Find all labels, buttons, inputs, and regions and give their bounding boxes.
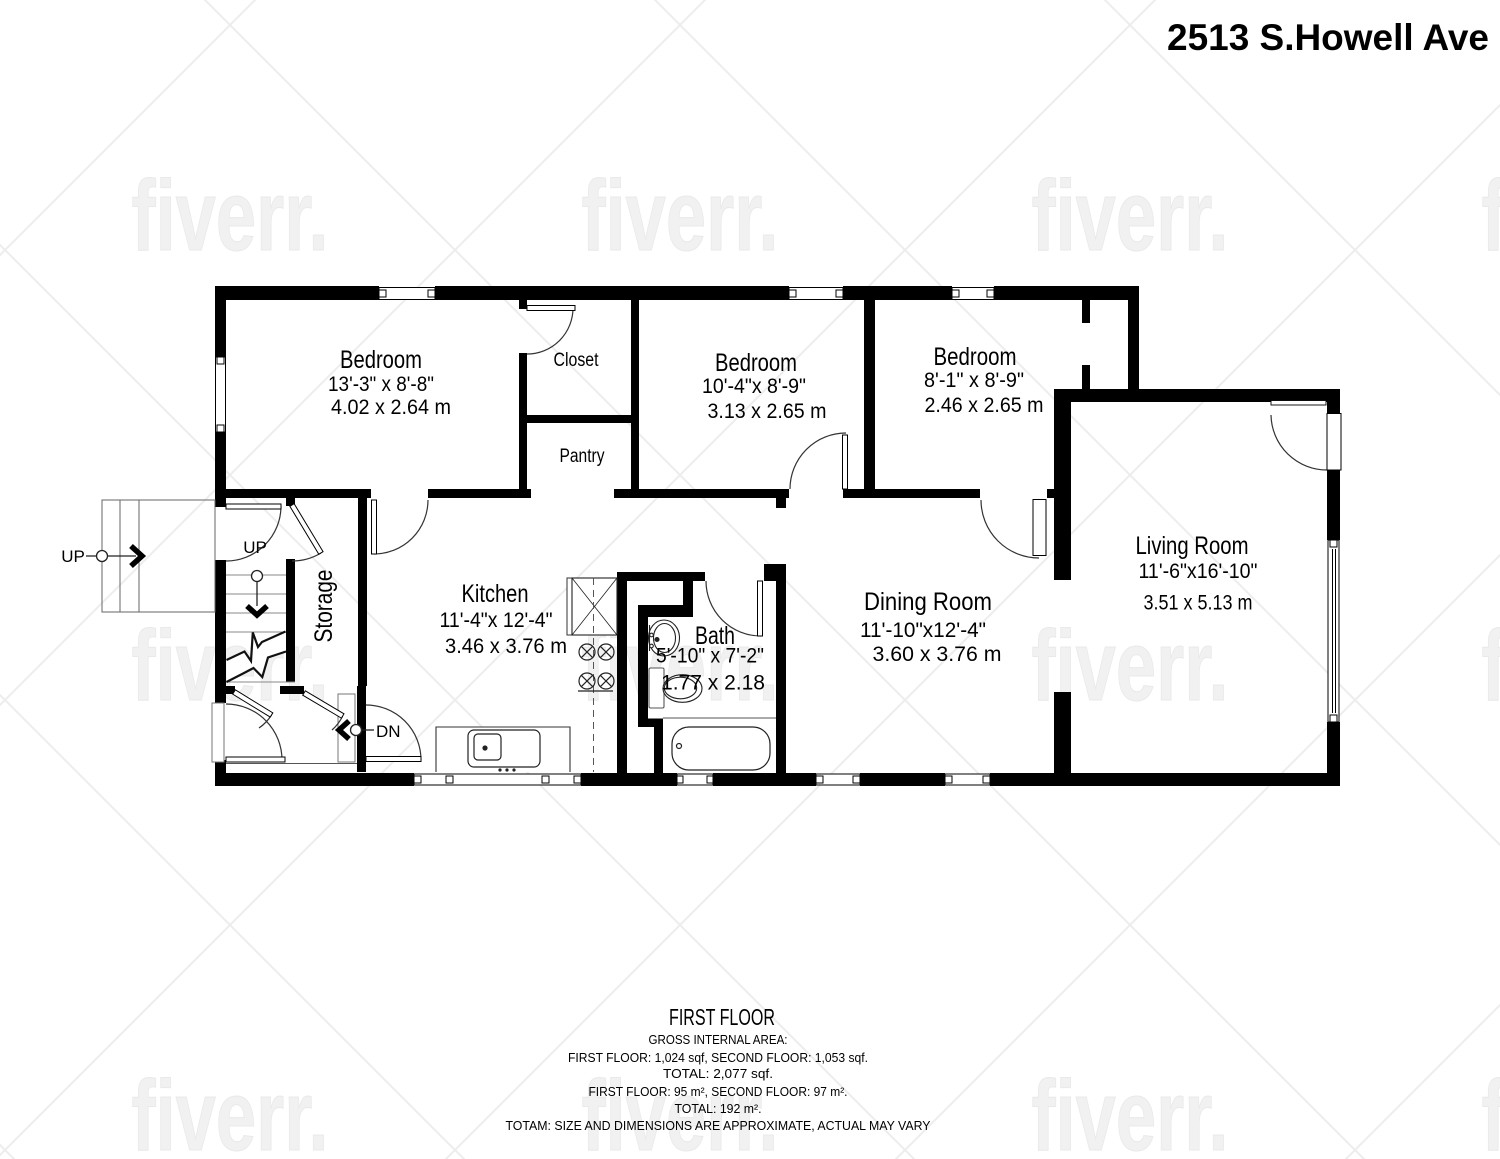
svg-text:11'-10"x12'-4": 11'-10"x12'-4" [860,619,986,642]
svg-text:5'-10" x 7'-2": 5'-10" x 7'-2" [656,645,764,668]
svg-text:2513 S.Howell Ave: 2513 S.Howell Ave [1167,17,1489,58]
svg-text:11'-6"x16'-10": 11'-6"x16'-10" [1139,560,1258,583]
svg-text:10'-4"x 8'-9": 10'-4"x 8'-9" [702,375,806,398]
svg-text:FIRST FLOOR: 1,024 sqf, SECOND: FIRST FLOOR: 1,024 sqf, SECOND FLOOR: 1,… [568,1050,868,1065]
svg-text:TOTAM: SIZE AND DIMENSIONS ARE: TOTAM: SIZE AND DIMENSIONS ARE APPROXIMA… [506,1118,931,1133]
svg-text:11'-4"x 12'-4": 11'-4"x 12'-4" [440,609,553,632]
svg-text:DN: DN [376,722,401,741]
svg-text:3.13 x 2.65 m: 3.13 x 2.65 m [708,400,827,423]
svg-text:3.46 x 3.76 m: 3.46 x 3.76 m [445,635,567,658]
svg-text:Bedroom: Bedroom [340,346,422,374]
svg-text:FIRST FLOOR: 95 m², SECOND FLO: FIRST FLOOR: 95 m², SECOND FLOOR: 97 m². [589,1084,848,1099]
svg-text:3.51 x 5.13 m: 3.51 x 5.13 m [1144,592,1253,615]
svg-text:TOTAL: 192 m².: TOTAL: 192 m². [675,1101,762,1116]
svg-text:Storage: Storage [310,570,338,643]
svg-text:GROSS INTERNAL AREA:: GROSS INTERNAL AREA: [649,1032,788,1047]
svg-text:13'-3" x 8'-8": 13'-3" x 8'-8" [328,373,434,396]
svg-text:UP: UP [61,547,85,566]
svg-text:2.46 x 2.65 m: 2.46 x 2.65 m [925,394,1044,417]
svg-text:1.77 x 2.18: 1.77 x 2.18 [661,672,765,695]
svg-text:Kitchen: Kitchen [462,580,529,608]
svg-text:FIRST FLOOR: FIRST FLOOR [669,1004,775,1030]
svg-text:UP: UP [243,538,267,557]
svg-text:Bedroom: Bedroom [715,349,797,377]
svg-text:8'-1" x 8'-9": 8'-1" x 8'-9" [924,369,1024,392]
svg-text:Pantry: Pantry [560,446,605,467]
svg-text:Living Room: Living Room [1136,532,1249,560]
svg-text:Closet: Closet [554,350,600,371]
svg-text:Bedroom: Bedroom [934,343,1017,371]
svg-text:Dining Room: Dining Room [864,588,992,616]
svg-text:3.60 x 3.76 m: 3.60 x 3.76 m [873,643,1002,666]
svg-text:TOTAL: 2,077 sqf.: TOTAL: 2,077 sqf. [663,1066,773,1081]
svg-text:4.02 x 2.64 m: 4.02 x 2.64 m [331,396,451,419]
